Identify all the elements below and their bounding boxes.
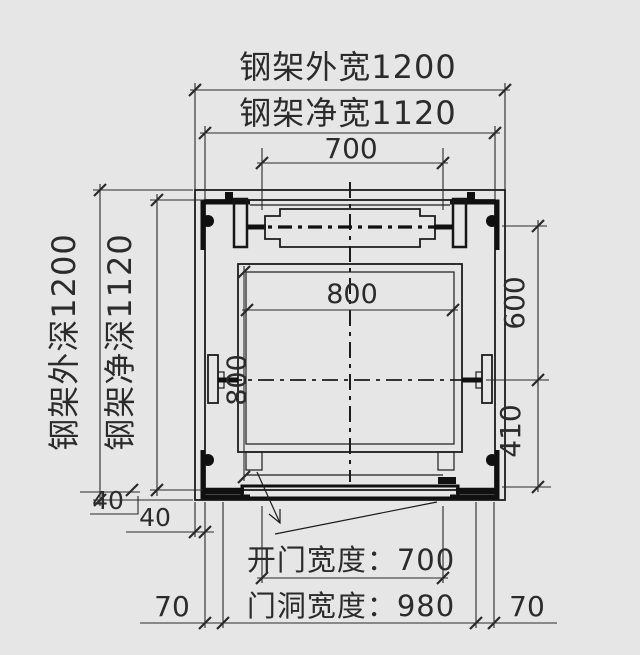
door-opening-label: 开门宽度：700: [247, 543, 455, 577]
right-600-label: 600: [498, 276, 531, 329]
bolt-bottom-left: [202, 454, 214, 466]
net-width-label: 钢架净宽1120: [239, 94, 456, 132]
door-vane-block: [438, 477, 456, 484]
weld-plate-top-left: [225, 192, 233, 200]
car-width-label: 800: [326, 279, 378, 310]
margin-70-left-label: 70: [154, 590, 190, 623]
outer-depth-label: 钢架外深1200: [45, 233, 83, 450]
outer-width-label: 钢架外宽1200: [239, 48, 456, 86]
offset-40b-label: 40: [139, 503, 171, 532]
elevator-shaft-plan-drawing: 钢架外宽1200 钢架净宽1120 700 钢架外深1200 钢架净深1120: [0, 0, 640, 655]
offset-40a-label: 40: [92, 486, 124, 515]
door-hole-label: 门洞宽度：980: [247, 589, 455, 623]
weld-plate-top-right: [467, 192, 475, 200]
bolt-top-left: [202, 215, 214, 227]
margin-70-right-label: 70: [509, 590, 545, 623]
net-depth-label: 钢架净深1120: [101, 233, 139, 450]
car-depth-label: 800: [222, 354, 253, 406]
bolt-top-right: [486, 215, 498, 227]
right-410-label: 410: [494, 404, 527, 457]
top-700-label: 700: [324, 132, 377, 165]
